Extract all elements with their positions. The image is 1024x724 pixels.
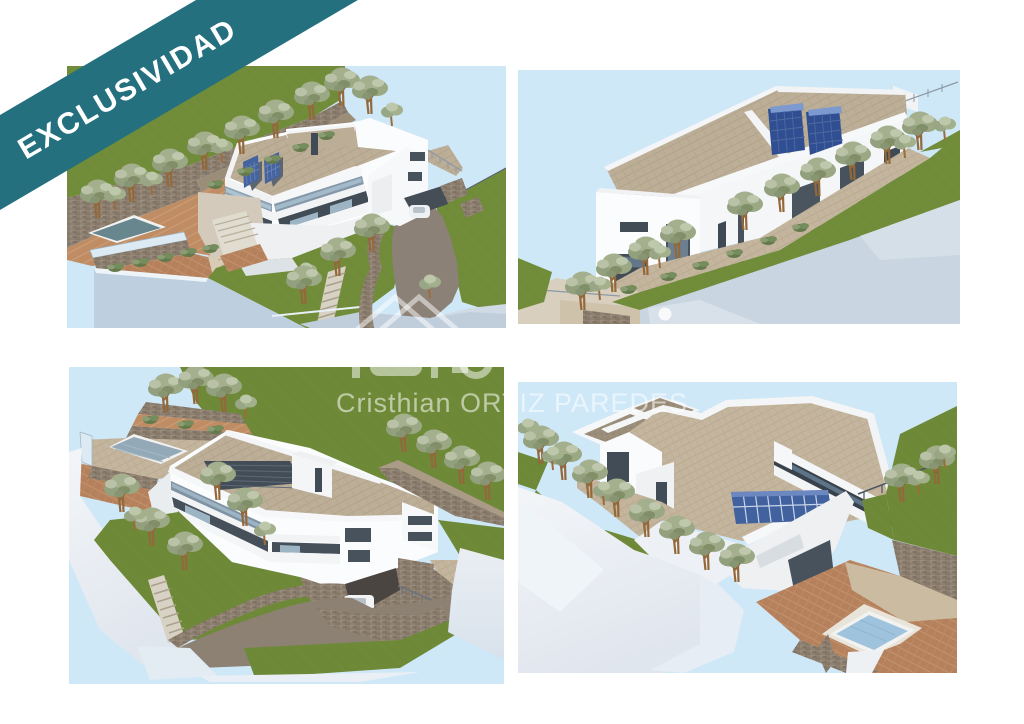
svg-text:Cristhian ORTIZ PAREDES: Cristhian ORTIZ PAREDES bbox=[336, 388, 688, 418]
